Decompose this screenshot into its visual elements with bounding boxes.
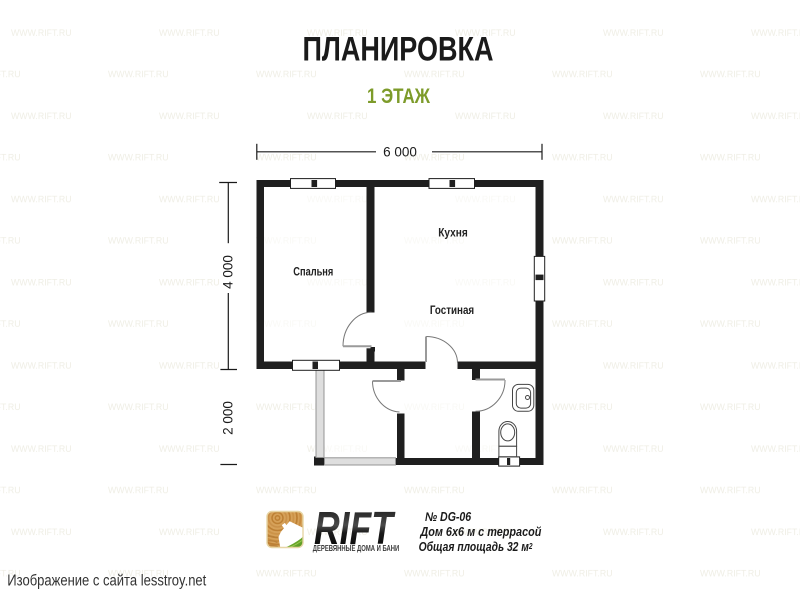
- svg-text:Дом 6х6 м с террасой: Дом 6х6 м с террасой: [420, 525, 542, 539]
- svg-text:№ DG-06: № DG-06: [425, 510, 472, 524]
- svg-text:6 000: 6 000: [383, 144, 417, 159]
- svg-text:4 000: 4 000: [221, 255, 236, 289]
- svg-text:Кухня: Кухня: [438, 225, 468, 239]
- svg-text:ПЛАНИРОВКА: ПЛАНИРОВКА: [303, 31, 494, 69]
- svg-text:Спальня: Спальня: [293, 265, 333, 279]
- svg-text:2 000: 2 000: [221, 401, 236, 435]
- svg-text:Общая площадь 32 м2: Общая площадь 32 м2: [419, 540, 533, 554]
- svg-text:1 ЭТАЖ: 1 ЭТАЖ: [367, 84, 430, 108]
- svg-text:ДЕРЕВЯННЫЕ ДОМА И БАНИ: ДЕРЕВЯННЫЕ ДОМА И БАНИ: [313, 543, 400, 553]
- svg-text:Изображение с сайта lesstroy.n: Изображение с сайта lesstroy.net: [7, 573, 207, 590]
- svg-text:Гостиная: Гостиная: [430, 303, 474, 317]
